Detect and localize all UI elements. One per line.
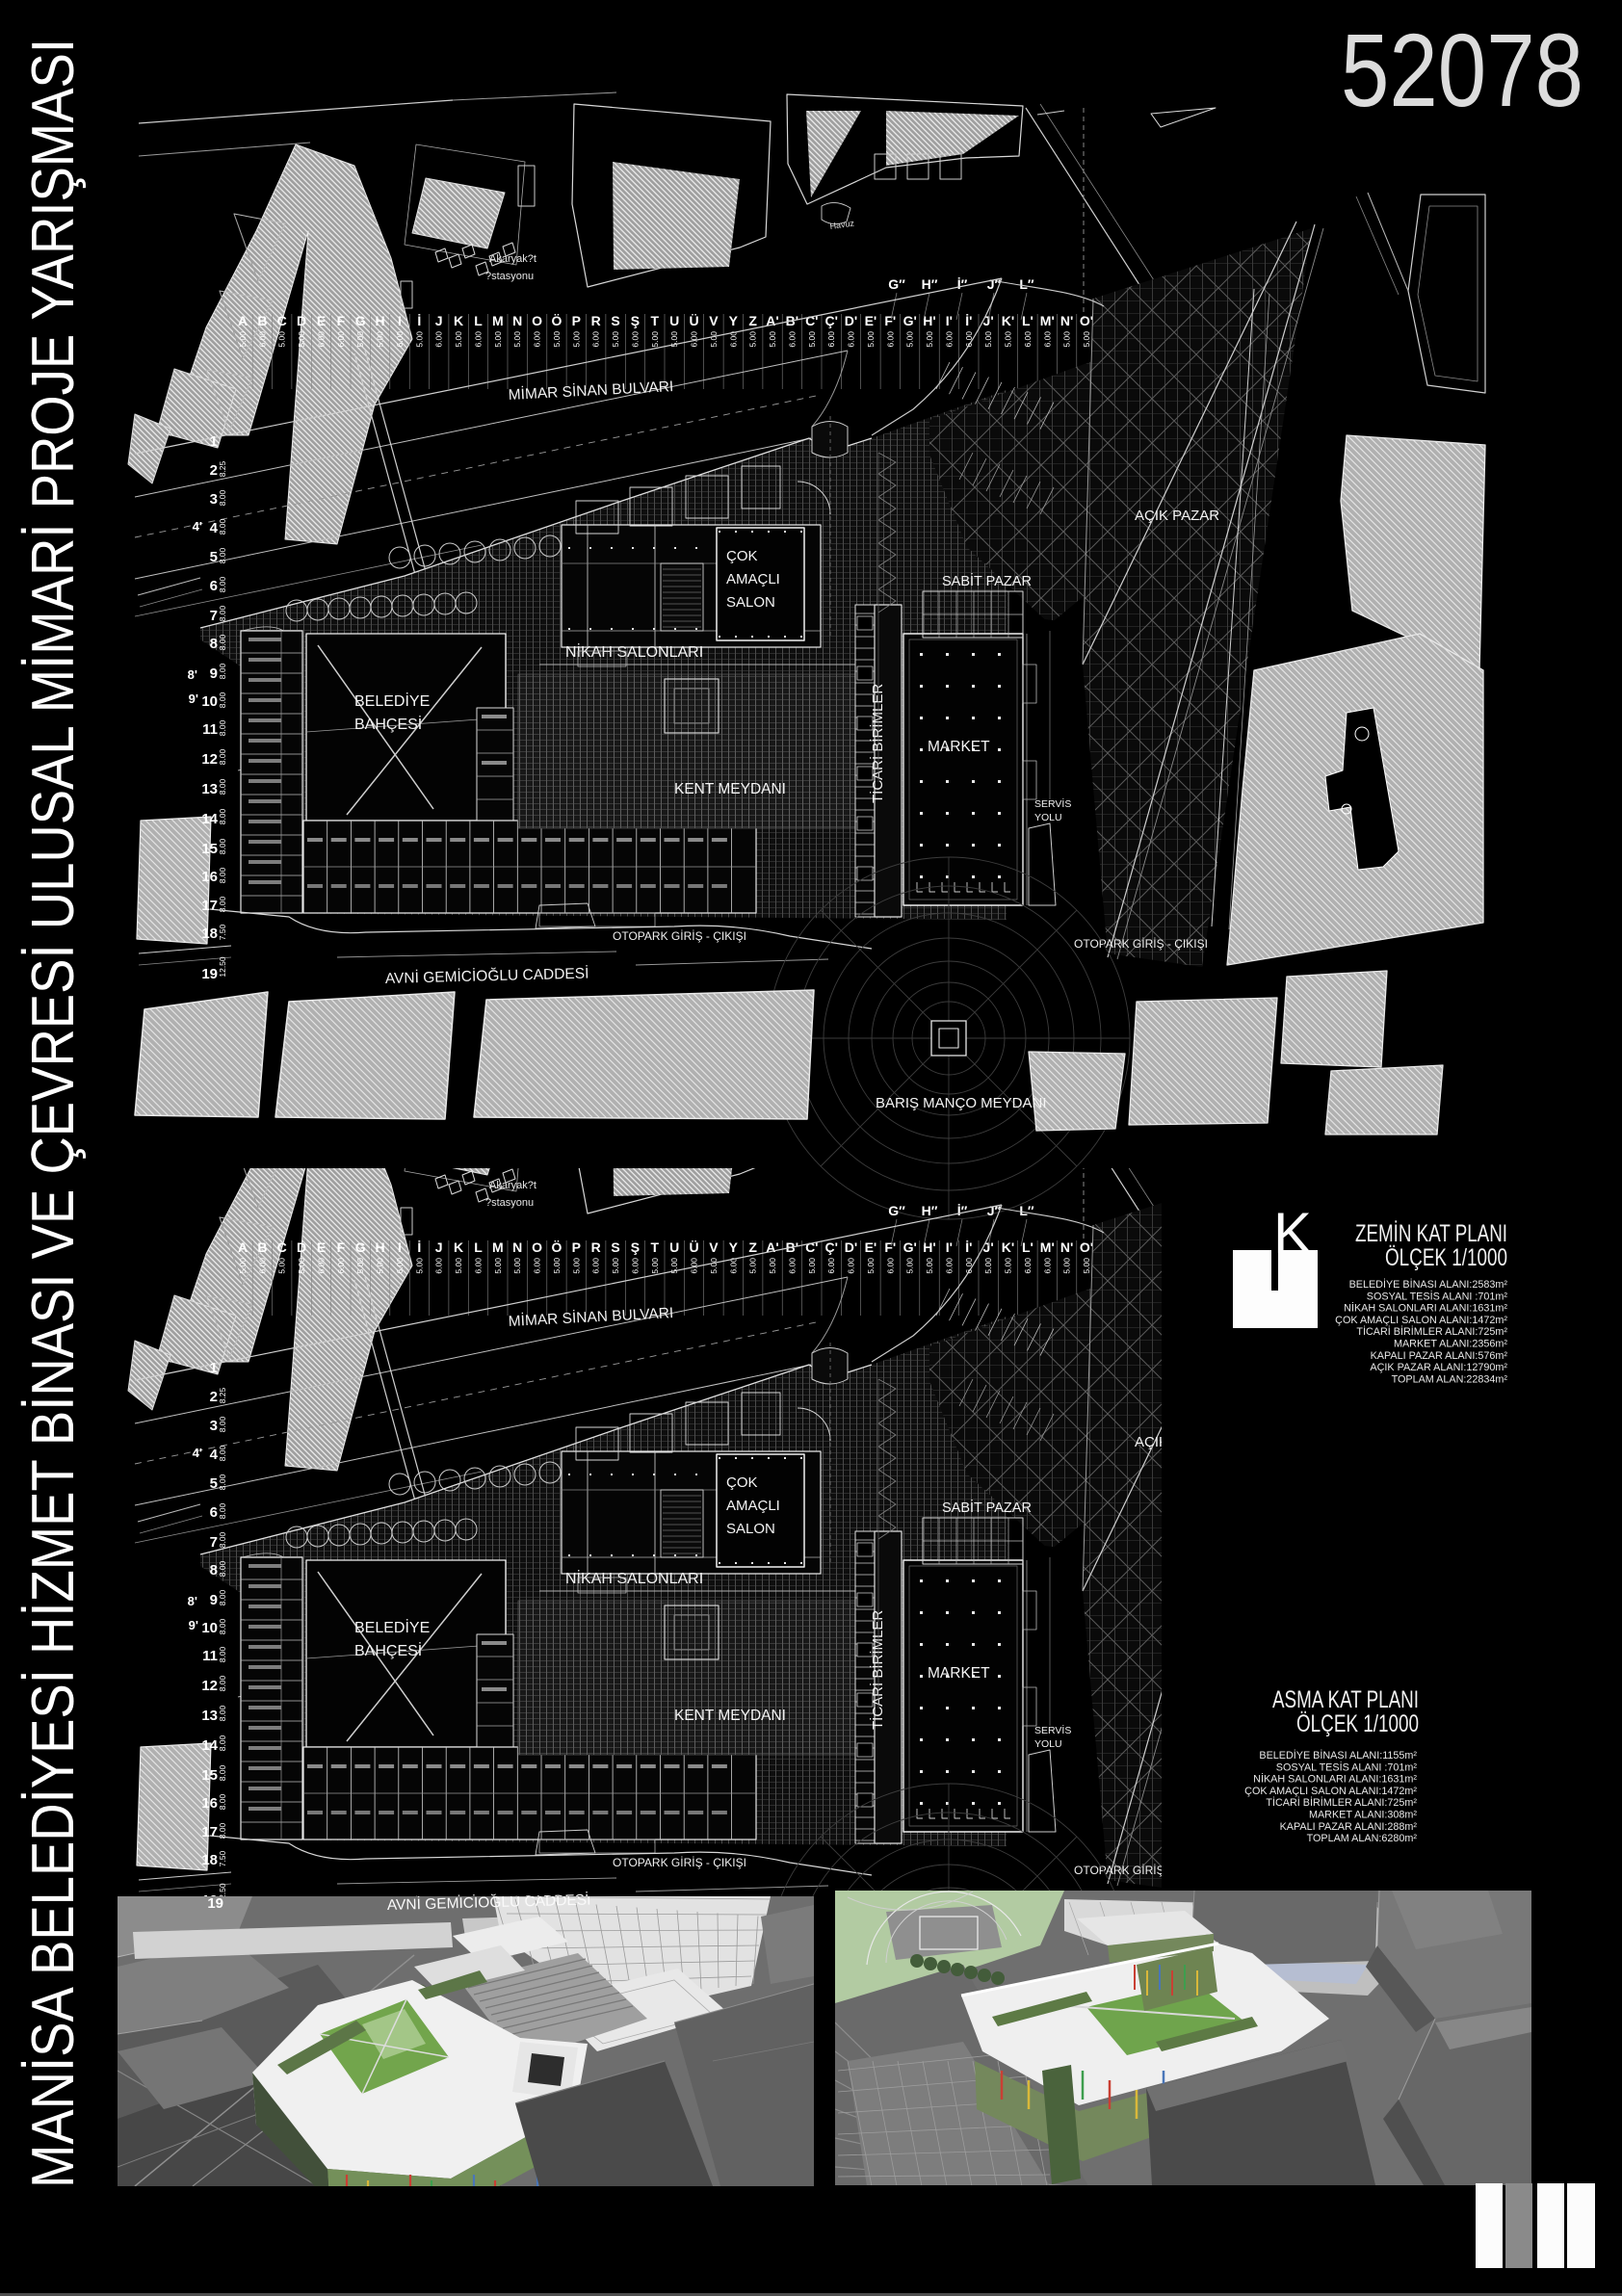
svg-text:5.00: 5.00 [709, 331, 719, 348]
svg-text:5.00: 5.00 [493, 331, 503, 348]
svg-text:5.00: 5.00 [355, 331, 365, 348]
svg-text:52078: 52078 [1341, 12, 1583, 128]
svg-text:A: A [238, 313, 248, 328]
svg-text:5.00: 5.00 [925, 331, 934, 348]
svg-text:ASMA KAT PLANI: ASMA KAT PLANI [1272, 1686, 1419, 1713]
svg-text:6.00: 6.00 [434, 331, 444, 348]
svg-text:BELEDİYE BİNASI ALANI:2583m²: BELEDİYE BİNASI ALANI:2583m² [1349, 1278, 1508, 1291]
svg-text:SOSYAL TESİS ALANI :701m²: SOSYAL TESİS ALANI :701m² [1276, 1761, 1418, 1773]
svg-text:U: U [669, 313, 679, 328]
svg-text:M: M [492, 313, 504, 328]
svg-text:OTOPARK GİRİŞ - ÇIKIŞI: OTOPARK GİRİŞ - ÇIKIŞI [613, 929, 746, 943]
svg-text:C: C [277, 313, 287, 328]
svg-text:6.00: 6.00 [847, 331, 856, 348]
svg-text:8: 8 [210, 636, 218, 652]
svg-text:3: 3 [210, 491, 218, 508]
svg-text:7: 7 [210, 608, 218, 624]
svg-text:5.00: 5.00 [454, 331, 463, 348]
svg-text:19: 19 [207, 1895, 223, 1912]
svg-text:TOPLAM ALAN:6280m²: TOPLAM ALAN:6280m² [1307, 1833, 1418, 1844]
svg-text:G: G [355, 313, 366, 328]
svg-text:6.00: 6.00 [885, 331, 895, 348]
svg-text:5.00: 5.00 [376, 331, 385, 348]
svg-text:8': 8' [188, 667, 197, 682]
svg-text:NİKAH SALONLARI ALANI:1631m²: NİKAH SALONLARI ALANI:1631m² [1344, 1302, 1507, 1315]
svg-text:6.00: 6.00 [944, 331, 954, 348]
svg-text:AÇIK PAZAR ALANI:12790m²: AÇIK PAZAR ALANI:12790m² [1370, 1362, 1507, 1373]
svg-text:9': 9' [189, 691, 198, 706]
svg-text:O': O' [1080, 313, 1093, 328]
svg-text:J': J' [983, 313, 994, 328]
svg-text:AMAÇLI: AMAÇLI [726, 571, 780, 587]
svg-text:K: K [1273, 1201, 1312, 1265]
svg-text:6.00: 6.00 [690, 331, 699, 348]
svg-text:F': F' [884, 313, 896, 328]
svg-text:TİCARİ BİRİMLER ALANI:725m²: TİCARİ BİRİMLER ALANI:725m² [1266, 1796, 1417, 1809]
svg-text:S: S [611, 313, 619, 328]
svg-text:ÖLÇEK 1/1000: ÖLÇEK 1/1000 [1385, 1244, 1507, 1271]
svg-text:KAPALI PAZAR ALANI:576m²: KAPALI PAZAR ALANI:576m² [1371, 1350, 1508, 1362]
svg-text:19: 19 [201, 966, 218, 982]
svg-text:R: R [591, 313, 601, 328]
svg-text:5.00: 5.00 [238, 331, 248, 348]
svg-text:12.50: 12.50 [218, 956, 227, 978]
svg-text:I: I [398, 313, 402, 328]
svg-text:13: 13 [201, 781, 218, 797]
svg-text:8.00: 8.00 [218, 634, 227, 650]
svg-text:8.00: 8.00 [218, 719, 227, 736]
svg-text:K: K [454, 313, 463, 328]
svg-text:8.00: 8.00 [218, 547, 227, 563]
svg-text:O: O [532, 313, 542, 328]
svg-text:D': D' [845, 313, 857, 328]
svg-text:8.00: 8.00 [218, 748, 227, 765]
svg-text:5.00: 5.00 [277, 331, 287, 348]
svg-text:1: 1 [210, 433, 218, 450]
svg-text:TOPLAM ALAN:22834m²: TOPLAM ALAN:22834m² [1392, 1373, 1508, 1385]
svg-text:8.00: 8.00 [218, 867, 227, 883]
svg-text:P: P [572, 313, 581, 328]
svg-text:8.00: 8.00 [218, 808, 227, 824]
svg-text:Akaryak?t: Akaryak?t [489, 253, 536, 265]
svg-text:BARIŞ MANÇO MEYDANI: BARIŞ MANÇO MEYDANI [876, 1095, 1047, 1111]
svg-text:5.00: 5.00 [650, 331, 660, 348]
svg-text:L': L' [1022, 313, 1033, 328]
svg-text:6.00: 6.00 [316, 331, 326, 348]
svg-text:ZEMİN KAT PLANI: ZEMİN KAT PLANI [1355, 1219, 1507, 1247]
svg-text:2: 2 [210, 462, 218, 479]
svg-text:6.00: 6.00 [826, 331, 836, 348]
svg-text:9: 9 [210, 665, 218, 682]
svg-text:8.00: 8.00 [218, 691, 227, 708]
svg-text:ÇOK: ÇOK [726, 548, 758, 564]
svg-text:5.00: 5.00 [983, 331, 993, 348]
svg-text:Z: Z [748, 313, 757, 328]
svg-text:16: 16 [201, 869, 218, 885]
svg-text:10: 10 [201, 693, 218, 710]
svg-text:BAHÇESİ: BAHÇESİ [354, 715, 422, 733]
svg-text:6: 6 [210, 578, 218, 594]
svg-text:İ″: İ″ [957, 276, 968, 292]
svg-text:BELEDİYE BİNASI ALANI:1155m²: BELEDİYE BİNASI ALANI:1155m² [1259, 1749, 1417, 1761]
svg-text:8.00: 8.00 [218, 489, 227, 506]
svg-text:6.00: 6.00 [395, 331, 405, 348]
svg-text:ÇOK AMAÇLI SALON ALANI:1472m²: ÇOK AMAÇLI SALON ALANI:1472m² [1335, 1315, 1507, 1326]
svg-text:5.00: 5.00 [571, 331, 581, 348]
svg-text:6.00: 6.00 [257, 331, 267, 348]
svg-text:?stasyonu: ?stasyonu [485, 271, 534, 282]
svg-text:MANİSA BELEDİYESİ HİZMET BİNAS: MANİSA BELEDİYESİ HİZMET BİNASI VE ÇEVRE… [20, 39, 87, 2188]
svg-text:8.00: 8.00 [218, 778, 227, 795]
svg-text:H: H [376, 313, 385, 328]
svg-text:N: N [512, 313, 522, 328]
svg-text:MARKET: MARKET [928, 739, 990, 755]
svg-text:7.50: 7.50 [218, 924, 227, 940]
svg-text:15: 15 [201, 841, 218, 857]
svg-text:17: 17 [201, 898, 218, 914]
svg-text:KAPALI PAZAR ALANI:288m²: KAPALI PAZAR ALANI:288m² [1280, 1821, 1418, 1833]
svg-text:I': I' [946, 313, 953, 328]
svg-text:6.00: 6.00 [533, 331, 542, 348]
svg-text:Y: Y [729, 313, 739, 328]
svg-text:5.00: 5.00 [1082, 331, 1091, 348]
svg-text:6.00: 6.00 [473, 331, 483, 348]
svg-text:E': E' [865, 313, 877, 328]
svg-text:6.00: 6.00 [1023, 331, 1033, 348]
svg-text:Ö: Ö [552, 313, 562, 328]
svg-text:B: B [257, 313, 267, 328]
svg-text:8.00: 8.00 [218, 663, 227, 679]
svg-text:Ç': Ç' [824, 313, 837, 328]
svg-text:6.00: 6.00 [336, 331, 346, 348]
svg-text:5.00: 5.00 [1004, 331, 1013, 348]
svg-text:K': K' [1002, 313, 1014, 328]
svg-text:5.00: 5.00 [807, 331, 817, 348]
svg-text:YOLU: YOLU [1034, 812, 1062, 823]
svg-text:AÇIK PAZAR: AÇIK PAZAR [1135, 508, 1219, 524]
svg-text:18: 18 [201, 926, 218, 942]
svg-text:6.00: 6.00 [591, 331, 601, 348]
svg-text:İ: İ [417, 313, 421, 328]
svg-text:5.00: 5.00 [768, 331, 777, 348]
svg-text:E: E [317, 313, 326, 328]
svg-text:SABİT PAZAR: SABİT PAZAR [942, 572, 1032, 589]
svg-text:6.00: 6.00 [630, 331, 640, 348]
svg-text:4': 4' [193, 519, 202, 534]
svg-text:Ş: Ş [631, 313, 640, 328]
svg-text:F: F [337, 313, 346, 328]
svg-text:KENT MEYDANI: KENT MEYDANI [674, 781, 786, 797]
svg-text:8.00: 8.00 [218, 518, 227, 535]
svg-text:6.00: 6.00 [1042, 331, 1052, 348]
svg-text:SOSYAL TESİS ALANI :701m²: SOSYAL TESİS ALANI :701m² [1367, 1290, 1508, 1302]
svg-text:6.00: 6.00 [787, 331, 797, 348]
svg-text:8.25: 8.25 [218, 460, 227, 477]
svg-text:5.00: 5.00 [1062, 331, 1072, 348]
svg-text:ÖLÇEK 1/1000: ÖLÇEK 1/1000 [1296, 1710, 1419, 1737]
svg-text:5.00: 5.00 [905, 331, 915, 348]
svg-text:V: V [709, 313, 719, 328]
svg-text:5.00: 5.00 [866, 331, 876, 348]
svg-text:5.00: 5.00 [297, 331, 306, 348]
svg-text:SALON: SALON [726, 594, 775, 611]
svg-text:5: 5 [210, 549, 218, 565]
svg-text:G″: G″ [888, 276, 905, 292]
svg-text:D: D [297, 313, 306, 328]
svg-text:5.00: 5.00 [611, 331, 620, 348]
svg-text:NİKAH SALONLARI: NİKAH SALONLARI [565, 642, 703, 661]
svg-text:İ': İ' [965, 313, 972, 328]
svg-text:5.00: 5.00 [512, 331, 522, 348]
svg-text:SERVİS: SERVİS [1034, 797, 1071, 810]
svg-text:L″: L″ [1019, 276, 1034, 292]
svg-text:8.00: 8.00 [218, 838, 227, 854]
svg-text:ÇOK AMAÇLI SALON ALANI:1472m²: ÇOK AMAÇLI SALON ALANI:1472m² [1244, 1786, 1417, 1797]
svg-text:H″: H″ [922, 276, 938, 292]
svg-text:Ü: Ü [690, 313, 699, 328]
svg-text:11: 11 [202, 721, 218, 738]
svg-text:MARKET ALANI:2356m²: MARKET ALANI:2356m² [1394, 1339, 1507, 1350]
svg-text:5.00: 5.00 [552, 331, 562, 348]
svg-text:OTOPARK GİRİŞ - ÇIKIŞI: OTOPARK GİRİŞ - ÇIKIŞI [1074, 937, 1208, 951]
svg-text:N': N' [1060, 313, 1073, 328]
svg-text:G': G' [903, 313, 917, 328]
svg-text:5.00: 5.00 [748, 331, 758, 348]
svg-text:MARKET ALANI:308m²: MARKET ALANI:308m² [1309, 1810, 1417, 1821]
svg-text:M': M' [1040, 313, 1055, 328]
svg-text:L: L [474, 313, 483, 328]
svg-text:8.00: 8.00 [218, 576, 227, 592]
svg-text:14: 14 [201, 811, 218, 827]
svg-text:TİCARİ BİRİMLER ALANI:725m²: TİCARİ BİRİMLER ALANI:725m² [1356, 1325, 1507, 1338]
svg-text:NİKAH SALONLARI ALANI:1631m²: NİKAH SALONLARI ALANI:1631m² [1253, 1773, 1417, 1786]
svg-text:BELEDİYE: BELEDİYE [354, 691, 430, 710]
svg-text:12: 12 [201, 751, 218, 768]
svg-text:5.00: 5.00 [414, 331, 424, 348]
svg-text:T: T [651, 313, 660, 328]
svg-text:J: J [435, 313, 443, 328]
svg-text:TİCARİ BİRİMLER: TİCARİ BİRİMLER [869, 684, 886, 803]
svg-text:8.00: 8.00 [218, 605, 227, 621]
